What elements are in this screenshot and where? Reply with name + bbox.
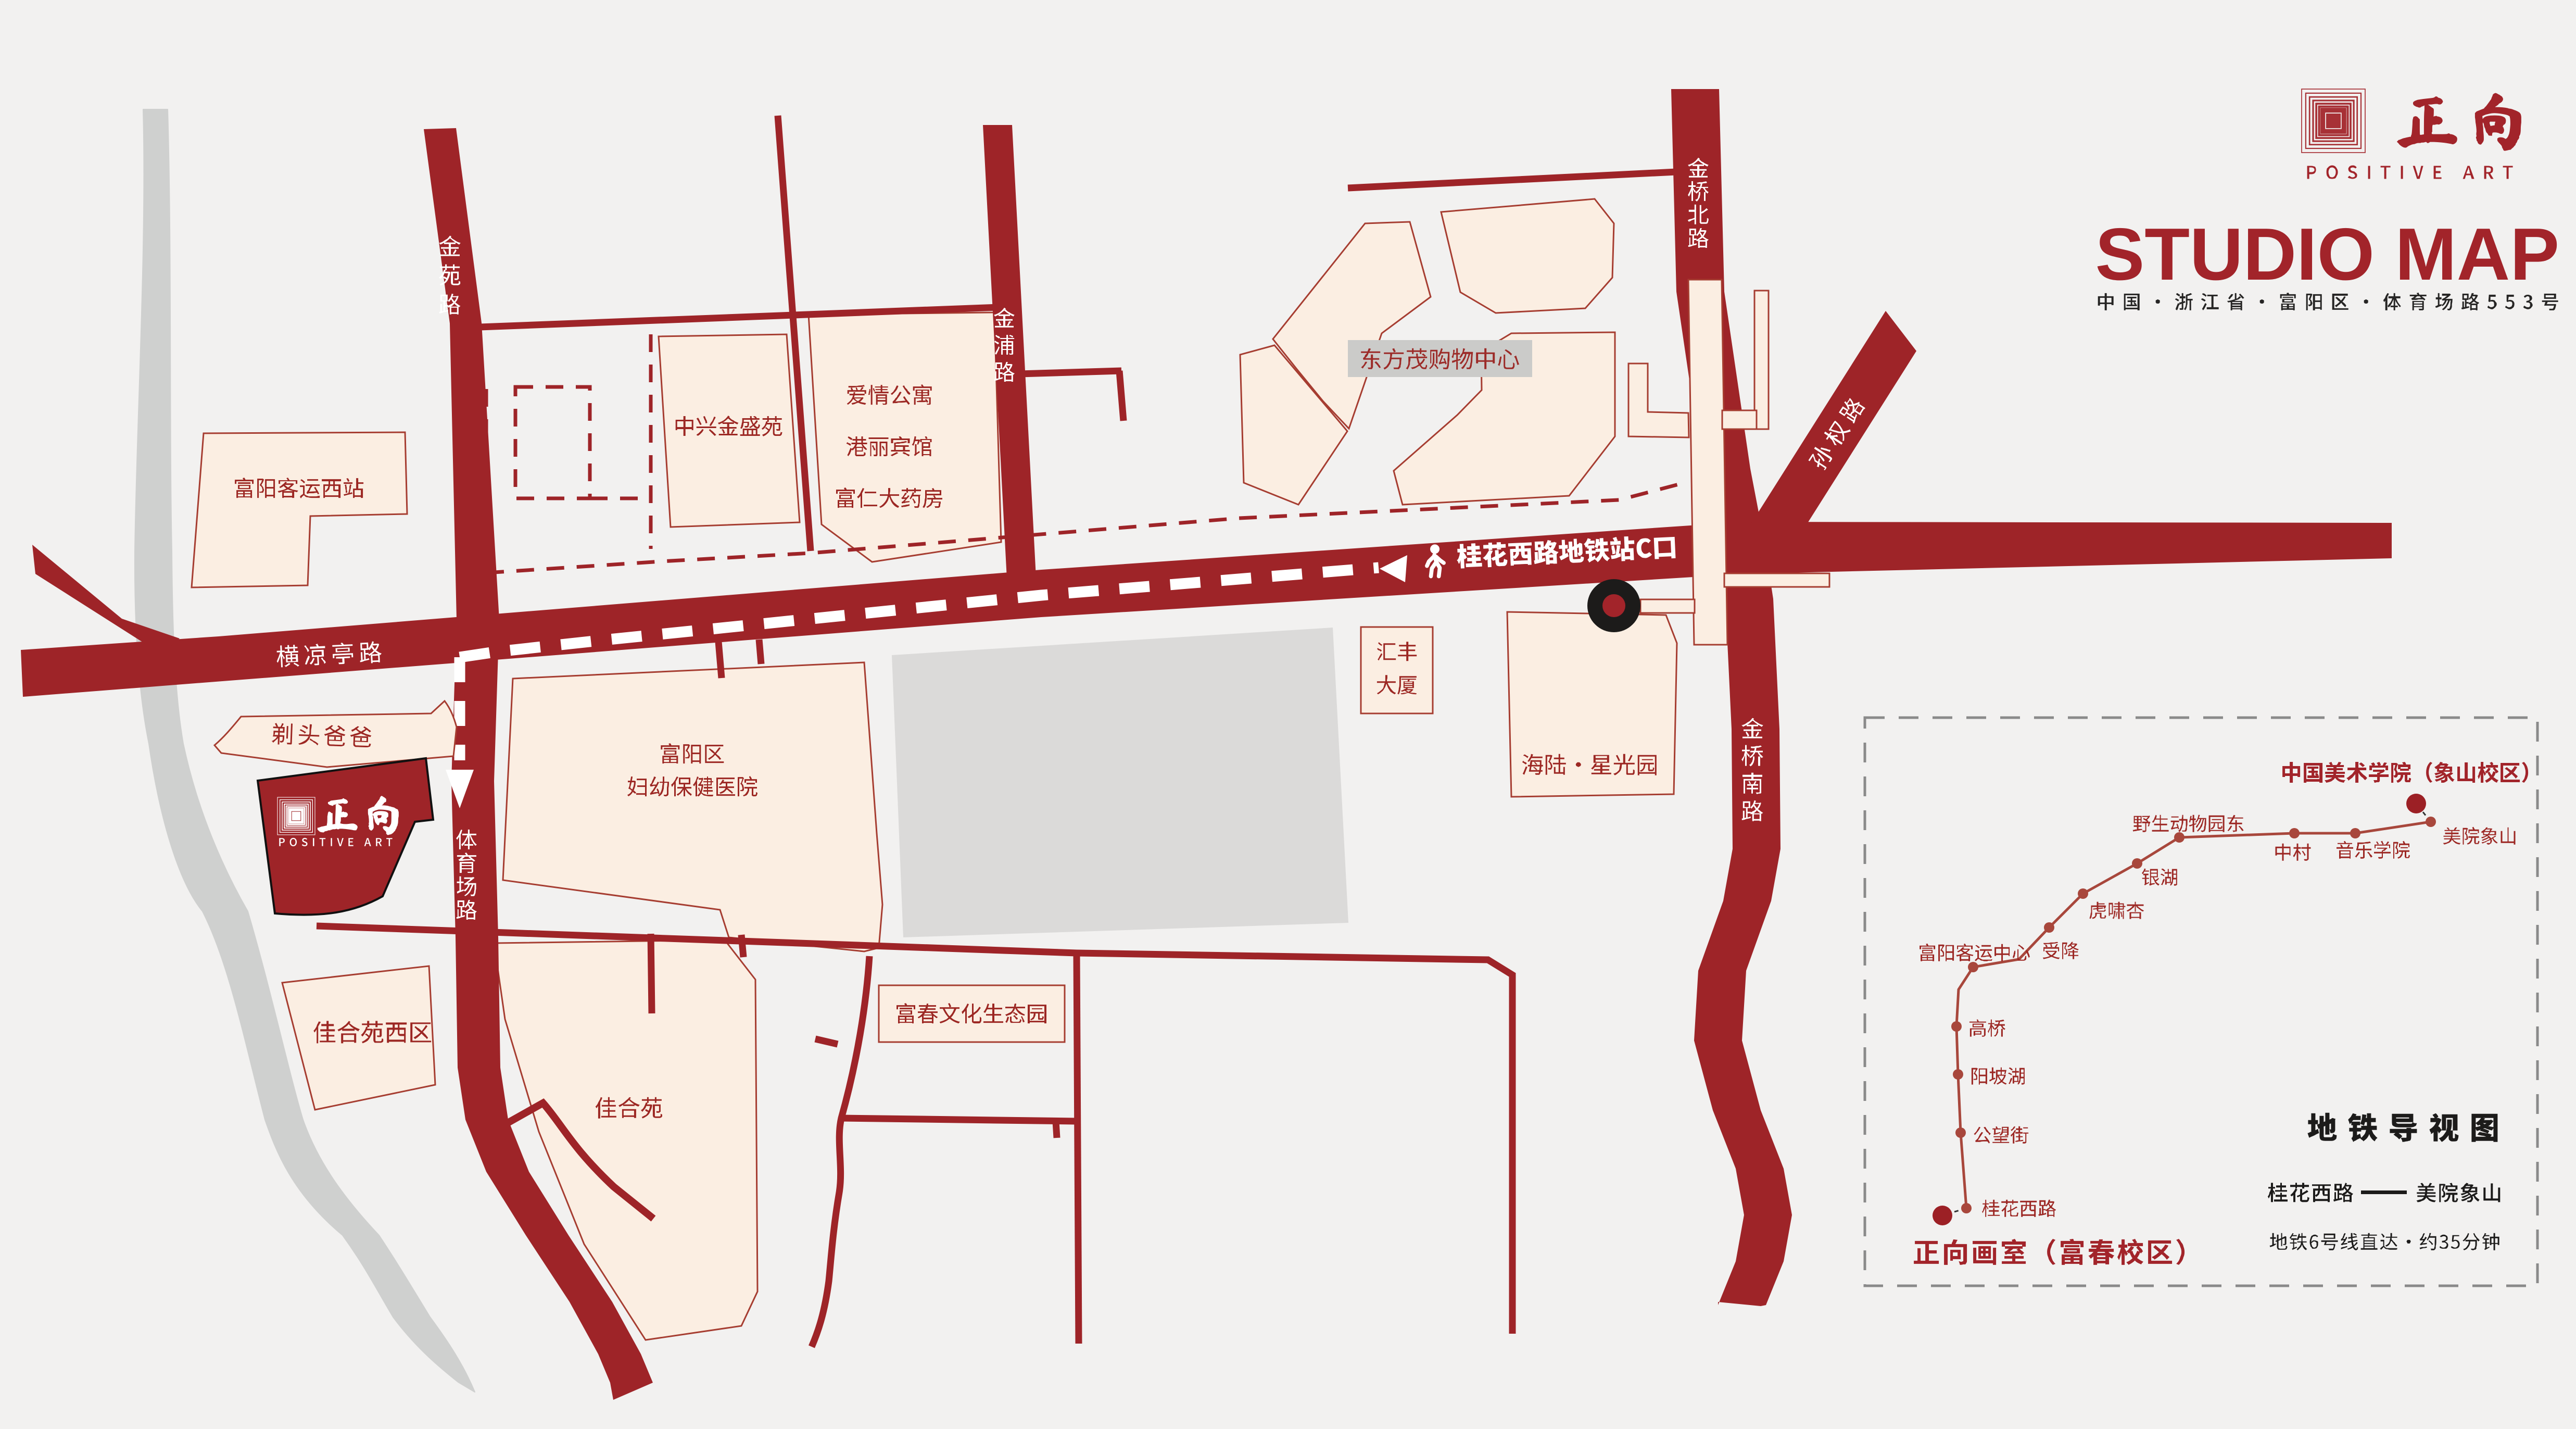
svg-text:STUDIO MAP: STUDIO MAP (2095, 213, 2559, 296)
